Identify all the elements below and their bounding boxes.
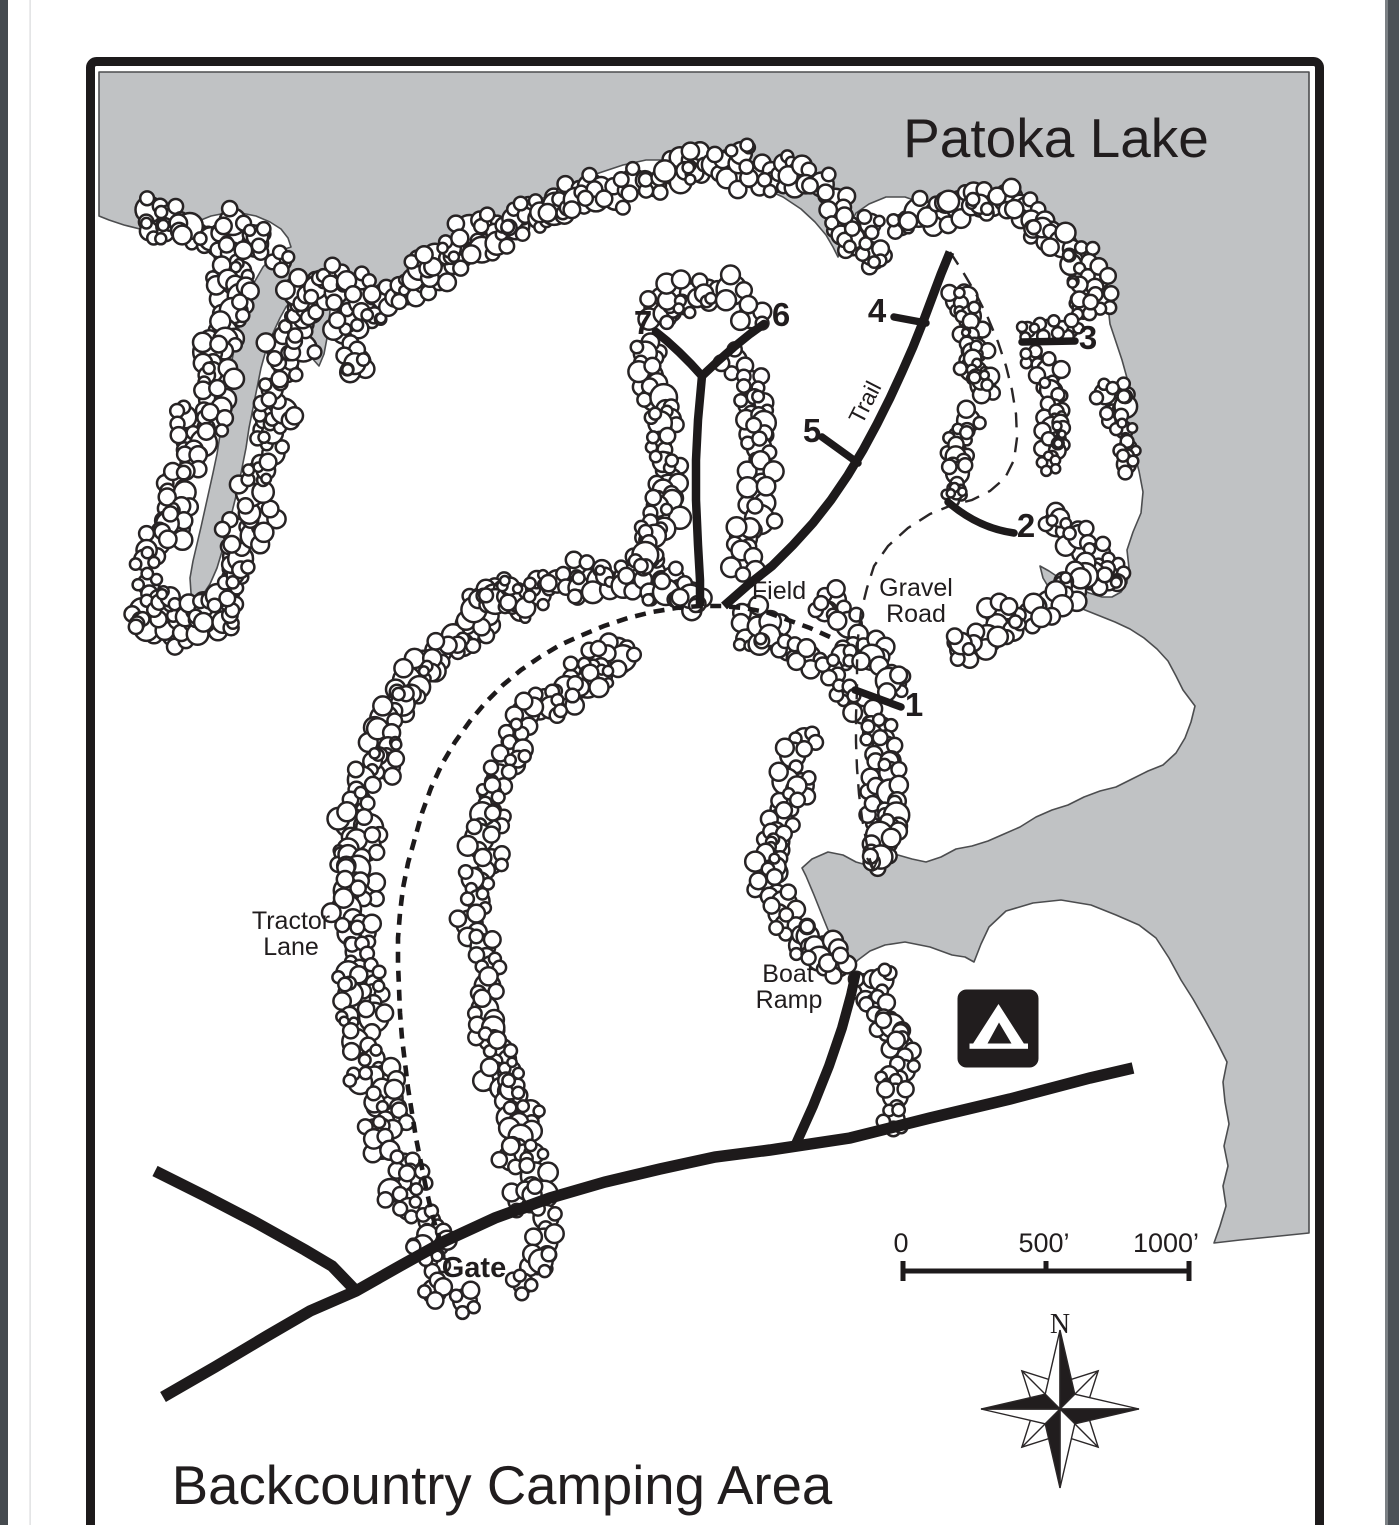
svg-text:Backcountry Camping Area: Backcountry Camping Area: [172, 1455, 833, 1516]
svg-text:Lane: Lane: [263, 933, 319, 961]
svg-text:1000’: 1000’: [1133, 1228, 1199, 1258]
svg-text:Tractor: Tractor: [252, 907, 330, 935]
svg-text:Patoka Lake: Patoka Lake: [903, 107, 1209, 169]
svg-text:7: 7: [634, 304, 652, 341]
svg-text:Field: Field: [752, 577, 806, 605]
svg-text:Gate: Gate: [442, 1252, 506, 1284]
svg-text:Road: Road: [886, 600, 946, 628]
svg-text:4: 4: [868, 292, 887, 329]
svg-text:6: 6: [772, 296, 790, 333]
svg-text:Boat: Boat: [762, 960, 813, 988]
svg-text:1: 1: [905, 686, 923, 723]
svg-text:0: 0: [893, 1228, 908, 1258]
svg-text:N: N: [1050, 1309, 1070, 1340]
svg-text:5: 5: [803, 412, 821, 449]
svg-text:Ramp: Ramp: [756, 986, 823, 1014]
svg-text:500’: 500’: [1018, 1228, 1069, 1258]
svg-text:Gravel: Gravel: [879, 574, 953, 602]
svg-text:2: 2: [1017, 507, 1035, 544]
svg-text:3: 3: [1079, 319, 1097, 356]
